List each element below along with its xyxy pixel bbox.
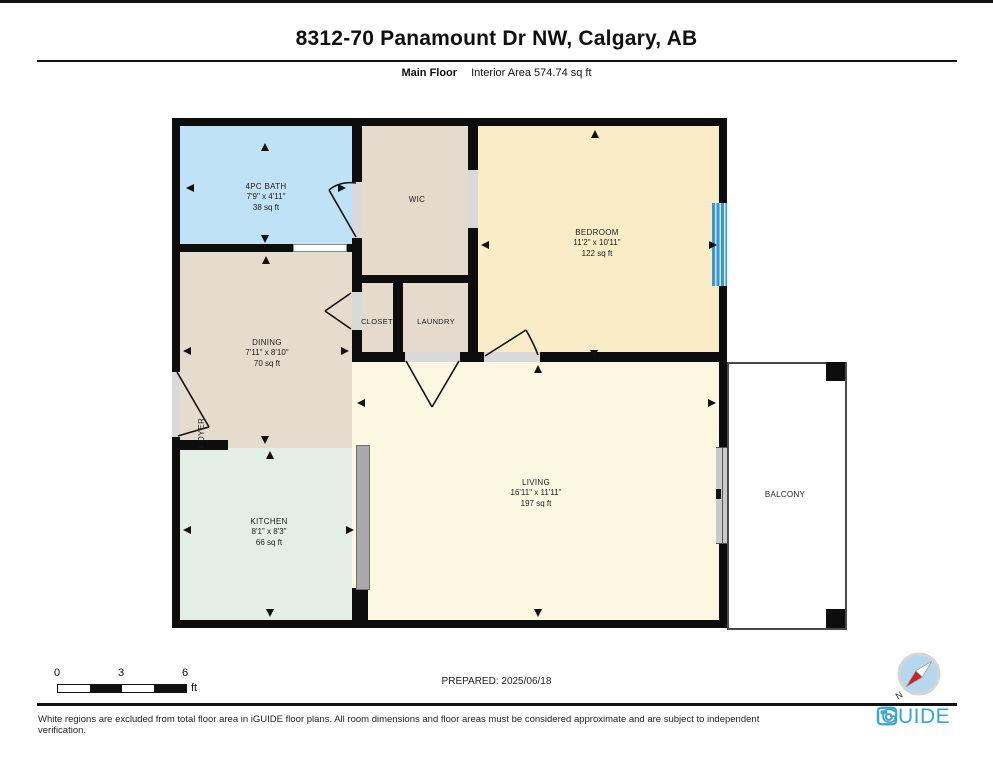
compass-north-label: N xyxy=(894,689,905,701)
label-bedroom: BEDROOM 11'2" x 10'11" 122 sq ft xyxy=(517,228,677,259)
bath-door-opening xyxy=(352,182,362,238)
top-border-line xyxy=(0,0,993,3)
title-divider xyxy=(37,60,957,62)
balcony-sliding-door xyxy=(716,447,727,544)
sliding-door-rail xyxy=(722,448,723,543)
disclaimer-text: White regions are excluded from total fl… xyxy=(38,714,798,736)
kitchen-counter xyxy=(356,445,370,590)
sliding-door-handle xyxy=(716,489,721,499)
label-balcony: BALCONY xyxy=(735,490,835,500)
prepared-date: PREPARED: 2025/06/18 xyxy=(0,676,993,687)
bedroom-door-opening xyxy=(484,352,540,362)
interior-area-label: Interior Area 574.74 sq ft xyxy=(471,67,591,79)
label-dining: DINING 7'11" x 8'10" 70 sq ft xyxy=(197,338,337,369)
bath-window xyxy=(293,244,347,252)
wall-outer-top xyxy=(172,118,727,126)
balcony-post-top xyxy=(826,362,845,381)
entry-door-opening xyxy=(172,372,180,437)
bedroom-window xyxy=(712,203,727,286)
wic-door-opening xyxy=(468,170,478,228)
wall-kitchen-living-stub xyxy=(352,588,368,620)
floor-label: Main Floor xyxy=(401,67,457,79)
page-title: 8312-70 Panamount Dr NW, Calgary, AB xyxy=(0,27,993,51)
laundry-door-opening xyxy=(405,352,460,362)
label-wic: WIC xyxy=(377,195,457,205)
wall-outer-bottom xyxy=(172,620,727,628)
label-living: LIVING 16'11" x 11'11" 197 sq ft xyxy=(456,478,616,509)
wall-outer-right xyxy=(719,118,727,628)
label-kitchen: KITCHEN 8'1" x 8'3" 66 sq ft xyxy=(199,517,339,548)
label-bath: 4PC BATH 7'9" x 4'11" 38 sq ft xyxy=(196,182,336,213)
wall-wic-bottom xyxy=(352,275,478,283)
label-laundry: LAUNDRY xyxy=(396,317,476,327)
floorplan-page: 8312-70 Panamount Dr NW, Calgary, AB Mai… xyxy=(0,0,993,768)
label-foyer: FOYER xyxy=(197,417,206,448)
balcony-post-bottom xyxy=(826,609,845,628)
iguide-logo: iGUIDE xyxy=(876,705,950,729)
iguide-logo-text: iGUIDE xyxy=(876,705,950,729)
footer-divider xyxy=(37,703,957,706)
floor-subtitle: Main FloorInterior Area 574.74 sq ft xyxy=(0,67,993,79)
